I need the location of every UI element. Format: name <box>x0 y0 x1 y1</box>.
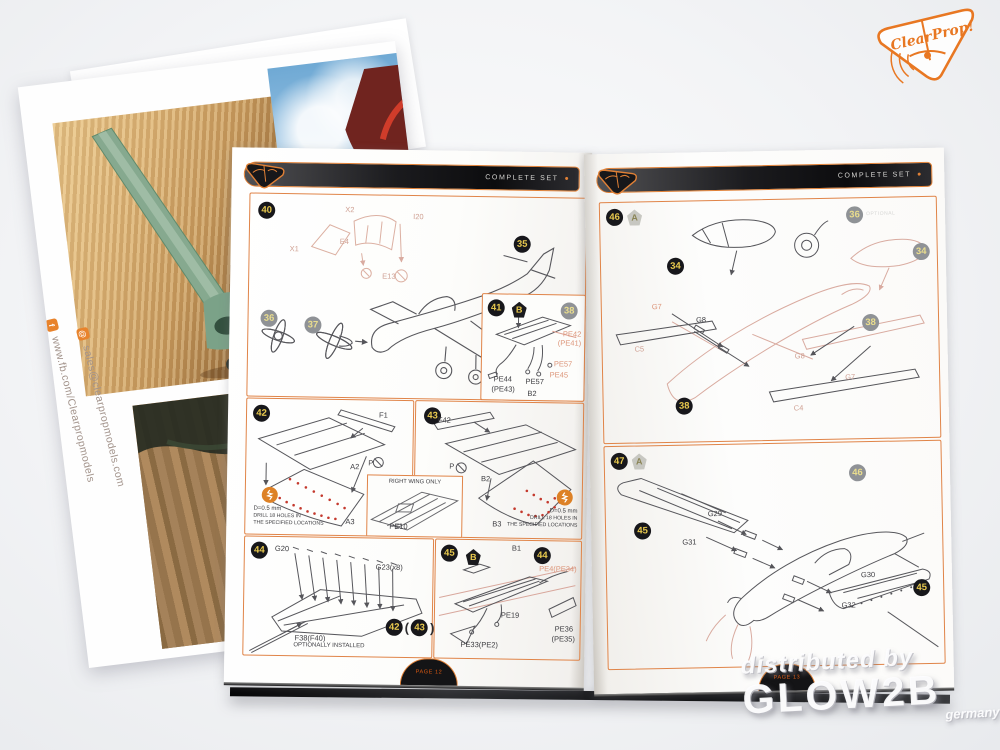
page-12: COMPLETE SET ● 40 36 37 35 X2 X1 E4 E13 … <box>224 147 592 688</box>
part-label-a3: A3 <box>345 517 354 526</box>
part-label-pe42: PE42 <box>563 329 581 338</box>
header-dot-icon: ● <box>564 175 568 182</box>
part-label-g29: G29 <box>708 509 722 518</box>
ref-badge-42: 42 <box>386 619 403 636</box>
drill-note: D=0.5 mm DRILL 18 HOLES IN THE SPECIFIED… <box>507 507 578 530</box>
part-label-g20: G20 <box>275 544 289 553</box>
part-label-g32: G32 <box>841 600 855 609</box>
part-label-b2: B2 <box>481 474 490 483</box>
part-label-p: P <box>368 458 373 467</box>
header-set-label: COMPLETE SET <box>485 174 558 182</box>
step-45-box: 45 B B1 44 PE4(PE34) PE19 PE36 (PE35) PE… <box>433 538 582 660</box>
page-header-bar: COMPLETE SET ● <box>596 162 932 193</box>
part-label-pe33: PE33(PE2) <box>460 640 498 650</box>
page-13: COMPLETE SET ● 46 A 34 36 OPTIONAL 34 38… <box>584 148 954 695</box>
part-label-c5: C5 <box>635 344 645 353</box>
distributor-watermark: distributed by GLOW2B germany <box>740 639 1000 732</box>
part-label-g8a: G8 <box>696 315 706 324</box>
ref-badge-43: 43 <box>411 619 428 636</box>
part-label-a2: A2 <box>350 462 359 471</box>
ref-badges-42-43: 42 ( 43 ) <box>386 619 435 637</box>
paren-close: ) <box>430 620 435 635</box>
part-label-b1: B1 <box>512 544 521 553</box>
part-label-g31: G31 <box>682 537 696 546</box>
part-label-pe19: PE19 <box>501 610 519 619</box>
page-header-bar: COMPLETE SET ● <box>244 161 580 191</box>
part-label-pe35: (PE35) <box>551 634 574 643</box>
drill-note: D=0.5 mm DRILL 18 HOLES IN THE SPECIFIED… <box>253 505 324 528</box>
step-46-box: 46 A 34 36 OPTIONAL 34 38 38 G7 G8 C5 G8… <box>599 196 942 444</box>
clearprop-logo-icon <box>594 164 641 197</box>
part-label-c4: C4 <box>794 403 804 412</box>
part-label-pe43: (PE43) <box>491 384 514 393</box>
page-number: PAGE 12 <box>416 669 443 675</box>
part-label-pe44: PE44 <box>494 374 512 383</box>
header-set-label: COMPLETE SET <box>838 171 911 179</box>
step-44-box: 44 G20 G23(x8) F38(F40) OPTIONALLY INSTA… <box>242 535 434 658</box>
part-label-pe45: PE45 <box>550 370 568 379</box>
page-footer: PAGE 12 <box>400 658 458 686</box>
part-label-e4: E4 <box>340 237 349 246</box>
step47-diagram <box>604 441 944 669</box>
header-dot-icon: ● <box>917 171 921 178</box>
part-label-p: P <box>449 462 454 471</box>
part-label-f1: F1 <box>379 411 388 420</box>
paren-open: ( <box>405 620 410 635</box>
part-label-pe36: PE36 <box>555 624 573 633</box>
part-label-pe41: (PE41) <box>558 338 581 347</box>
ref-badge-44: 44 <box>534 547 551 564</box>
part-label-pe10: PE10 <box>389 522 407 531</box>
part-label-e13: E13 <box>382 272 395 281</box>
part-label-pe4: PE4(PE34) <box>539 564 577 574</box>
photo-scene: @ sales@clearpropmodels.com f www.fb.com… <box>0 0 1000 750</box>
right-wing-only-inset: RIGHT WING ONLY PE10 <box>366 474 463 538</box>
step-41-box: 41 B 38 PE42 (PE41) PE57 PE45 PE44 (PE43… <box>480 293 586 402</box>
part-label-g7b: G7 <box>845 372 855 381</box>
note-optionally-installed: OPTIONALLY INSTALLED <box>293 642 364 649</box>
part-label-x1: X1 <box>290 244 299 253</box>
instruction-booklet: COMPLETE SET ● 40 36 37 35 X2 X1 E4 E13 … <box>228 146 952 694</box>
faint-note: OPTIONAL <box>866 211 895 218</box>
part-label-pe57b: PE57 <box>526 377 544 386</box>
part-label-b2: B2 <box>527 389 536 398</box>
clearprop-logo-icon <box>242 158 288 191</box>
clearprop-logo-icon: Clear Prop! <box>864 0 999 102</box>
part-label-g23: G23(x8) <box>376 563 403 572</box>
part-label-f38: F38(F40) <box>294 633 325 642</box>
step44-diagram <box>243 536 433 657</box>
part-label-x2: X2 <box>345 205 354 214</box>
part-label-f42: F42 <box>438 415 451 424</box>
step-47-box: 47 A 45 G29 G31 46 G30 G32 45 <box>603 440 945 670</box>
part-label-g7a: G7 <box>652 302 662 311</box>
step46-diagram <box>600 197 941 443</box>
facebook-icon: f <box>45 318 60 333</box>
part-label-g8b: G8 <box>795 351 805 360</box>
part-label-g30: G30 <box>861 570 875 579</box>
clearprop-brand-logo: Clear Prop! <box>864 0 999 102</box>
part-label-i20: I20 <box>413 212 424 221</box>
part-label-b3: B3 <box>492 519 501 528</box>
part-label-pe57a: PE57 <box>554 359 572 368</box>
